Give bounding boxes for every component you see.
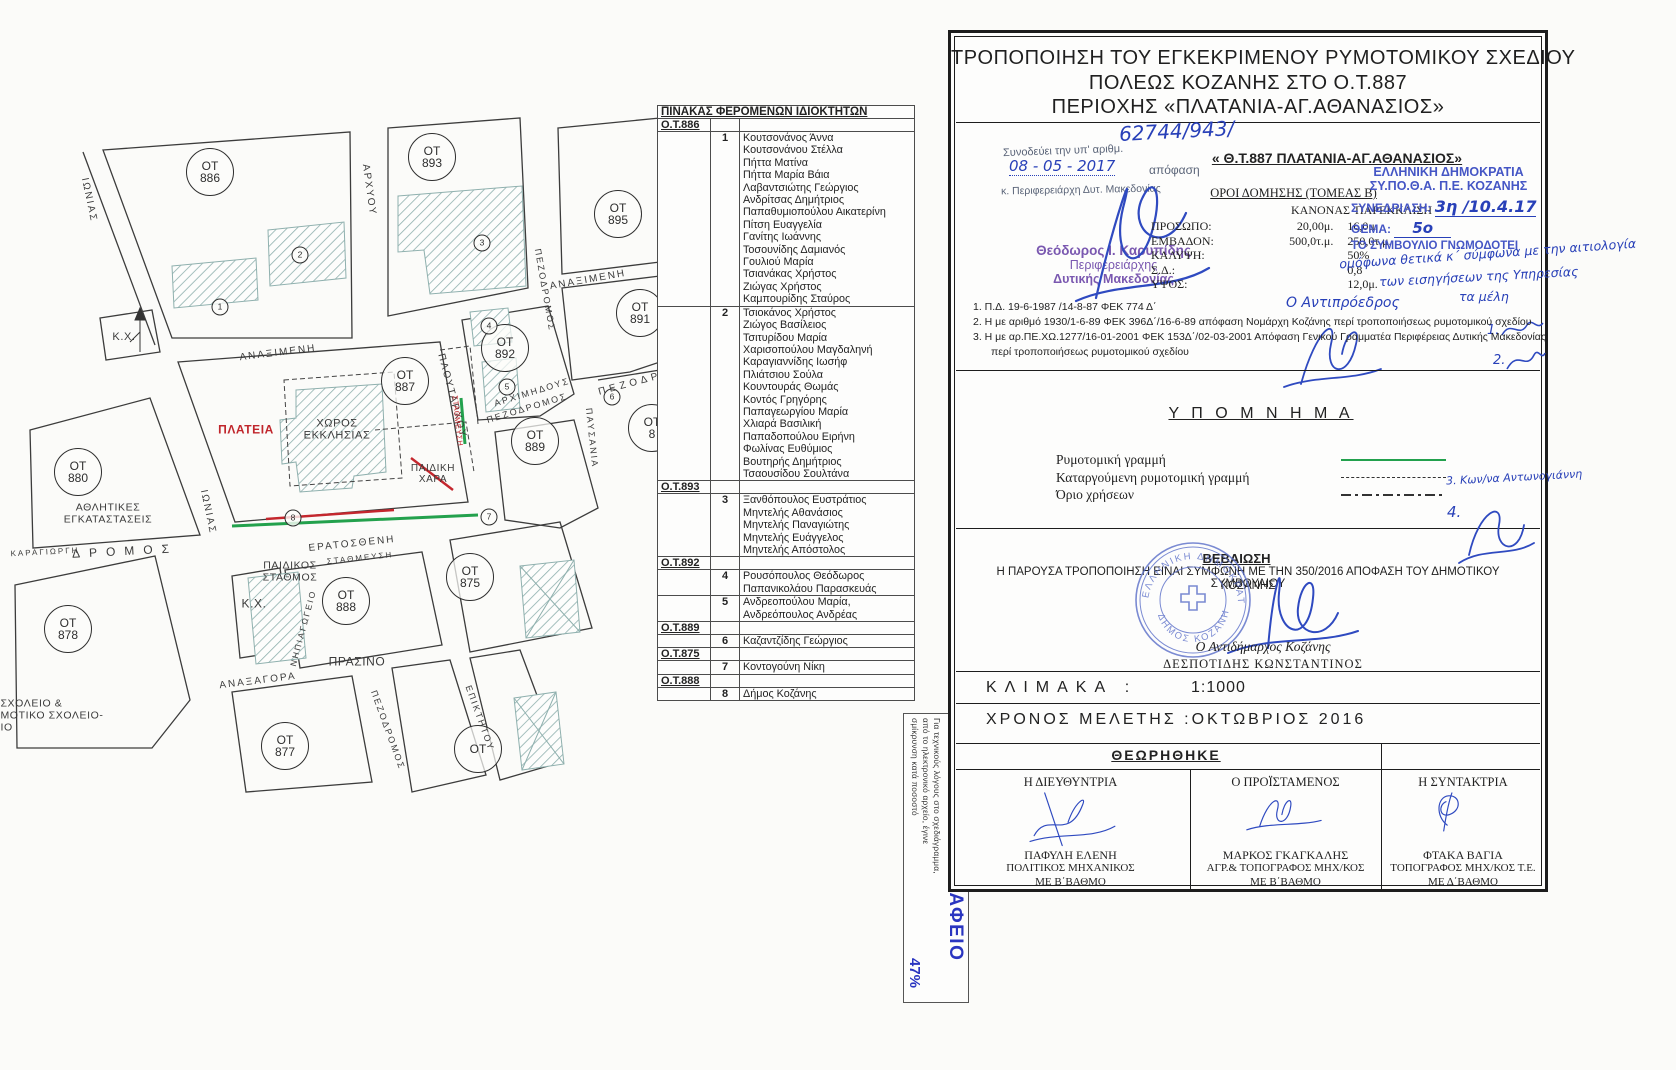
- topic-handwritten: 5ο: [1394, 219, 1451, 238]
- section-divider: [956, 671, 1540, 672]
- street-label: ΝΗΠΙΑΓΩΓΕΙΟ: [288, 589, 318, 668]
- owner-name: Ζιώγος Βασίλειος: [743, 319, 911, 331]
- area-label-line: ΑΘΛΗΤΙΚΕΣ: [64, 502, 152, 514]
- element: [740, 674, 915, 687]
- element: [658, 635, 711, 648]
- ot-number: 8: [649, 428, 656, 440]
- table-row: ΠΙΝΑΚΑΣ ΦΕΡΟΜΕΝΩΝ ΙΔΙΟΚΤΗΤΩΝ: [658, 106, 915, 119]
- element: [711, 119, 740, 132]
- ot-number: 887: [395, 381, 415, 393]
- element: [711, 557, 740, 570]
- owner-name: Ρουσόπουλος Θεόδωρος: [743, 570, 911, 582]
- area-label-line: ΣΤΑΘΜΟΣ: [263, 572, 318, 584]
- ot-circle: ΟΤ875: [446, 553, 494, 601]
- signer-title: ΤΟΠΟΓΡΑΦΟΣ ΜΗΧ/ΚΟΣ Τ.Ε.: [1390, 862, 1535, 876]
- city-plan-map: ΟΤ886ΟΤ893ΟΤ895ΟΤ891ΟΤ887ΟΤ892ΟΤ889ΟΤ880…: [0, 0, 660, 1070]
- ot-circle: ΟΤ888: [322, 577, 370, 625]
- owner-name: Τσαουσίδου Σουλτάνα: [743, 468, 911, 480]
- element: [658, 570, 711, 596]
- entry-number: 6: [711, 635, 740, 648]
- street-label: ΑΝΑΞΙΜΕΝΗ: [549, 268, 627, 292]
- area-label-line: ΕΓΚΑΤΑΣΤΑΣΕΙΣ: [64, 514, 152, 526]
- vice-mayor-role: Ο Αντιδήμαρχος Κοζάνης: [1173, 639, 1353, 655]
- owners-table: ΠΙΝΑΚΑΣ ΦΕΡΟΜΕΝΩΝ ΙΔΙΟΚΤΗΤΩΝΟ.Τ.8861Κουτ…: [657, 105, 915, 701]
- owner-name: Κοντογούνη Νίκη: [743, 661, 911, 673]
- element: [658, 494, 711, 557]
- element: [658, 687, 711, 700]
- owner-names: Ρουσόπουλος ΘεόδωροςΠαπανικολάου Παρασκε…: [740, 570, 915, 596]
- legend-symbol: [1341, 459, 1446, 461]
- terms-label: ΕΜΒΑΔΟΝ:: [1151, 234, 1245, 249]
- block-label: Ο.Τ.889: [658, 622, 711, 635]
- approved-signer-column: Η ΣΥΝΤΑΚΤΡΙΑΦΤΑΚΑ ΒΑΓΙΑΤΟΠΟΓΡΑΦΟΣ ΜΗΧ/ΚΟ…: [1381, 769, 1545, 889]
- owner-name: Πήττα Ματίνα: [743, 157, 911, 169]
- element: [658, 306, 711, 481]
- table-row: Ο.Τ.893: [658, 481, 915, 494]
- table-row: 3Ξανθόπουλος ΕυστράτιοςΜηντελής Αθανάσιο…: [658, 494, 915, 557]
- element: [740, 557, 915, 570]
- signer-name: ΜΑΡΚΟΣ ΓΚΑΓΚΑΛΗΣ: [1223, 849, 1348, 863]
- area-label-line: ΜΟΤΙΚΟ ΣΧΟΛΕΙΟ-: [0, 710, 103, 722]
- owner-name: Μηντελής Αθανάσιος: [743, 507, 911, 519]
- approved-signer-column: Ο ΠΡΟΪΣΤΑΜΕΝΟΣΜΑΡΚΟΣ ΓΚΑΓΚΑΛΗΣΑΓΡ.& ΤΟΠΟ…: [1190, 769, 1381, 889]
- owner-names: Τσιοκάνος ΧρήστοςΖιώγος ΒασίλειοςΤσιτυρί…: [740, 306, 915, 481]
- element: [658, 596, 711, 622]
- entry-number: 5: [711, 596, 740, 622]
- ot-circle: ΟΤ887: [381, 357, 429, 405]
- area-label-line: ΠΡΑΣΙΝΟ: [329, 655, 386, 668]
- building-number: 4: [481, 318, 498, 335]
- street-label: ΚΑΡΑΓΙΩΡΓΗ: [10, 546, 79, 559]
- legend-label: Καταργούμενη ρυμοτομική γραμμή: [1056, 470, 1249, 485]
- signer-title: ΠΟΛΙΤΙΚΟΣ ΜΗΧΑΝΙΚΟΣ: [1006, 862, 1134, 876]
- owner-name: Παπαγεωργίου Μαρία: [743, 406, 911, 418]
- ot-circle: ΟΤ893: [408, 133, 456, 181]
- ot-number: 888: [336, 601, 356, 613]
- ot-number: 889: [525, 441, 545, 453]
- entry-number: 7: [711, 661, 740, 674]
- area-label: ΣΤΑΘΜΕΥΣΗ: [450, 395, 464, 447]
- session-label: ΣΥΝΕΔΡΙΑΣΗ:: [1351, 201, 1431, 215]
- block-label: Ο.Τ.888: [658, 674, 711, 687]
- area-label-line: Κ.Χ.: [112, 331, 135, 343]
- signer-role: Η ΣΥΝΤΑΚΤΡΙΑ: [1418, 775, 1507, 790]
- area-label: Κ.Χ.: [112, 331, 135, 343]
- owner-name: Πίτση Ευαγγελία: [743, 219, 911, 231]
- area-label-line: ΠΑΙΔΙΚΗ: [411, 463, 455, 474]
- element: [740, 481, 915, 494]
- entry-number: 4: [711, 570, 740, 596]
- owner-name: Χλιαρά Βασιλική: [743, 418, 911, 430]
- block-label: Ο.Τ.886: [658, 119, 711, 132]
- topic-row: ΘΕΜΑ: 5ο: [1351, 219, 1546, 237]
- owner-names: Ξανθόπουλος ΕυστράτιοςΜηντελής Αθανάσιος…: [740, 494, 915, 557]
- street-label: ΙΩΝΙΑΣ: [198, 489, 218, 535]
- legend-label: Ρυμοτομική γραμμή: [1056, 452, 1166, 467]
- area-label-line: ΠΛΑΤΕΙΑ: [218, 423, 274, 436]
- street-label: ΙΩΝΙΑΣ: [79, 177, 99, 223]
- table-row: 7Κοντογούνη Νίκη: [658, 661, 915, 674]
- owner-name: Κοντός Γρηγόρης: [743, 394, 911, 406]
- owners-table-container: ΠΙΝΑΚΑΣ ΦΕΡΟΜΕΝΩΝ ΙΔΙΟΚΤΗΤΩΝΟ.Τ.8861Κουτ…: [657, 105, 915, 701]
- street-label: ΠΑΥΣΑΝΙΑ: [584, 407, 600, 468]
- map-labels: ΟΤ886ΟΤ893ΟΤ895ΟΤ891ΟΤ887ΟΤ892ΟΤ889ΟΤ880…: [0, 0, 660, 1070]
- owner-name: Καμπουρίδης Σταύρος: [743, 293, 911, 305]
- block-label: Ο.Τ.875: [658, 648, 711, 661]
- area-label: ΠΑΙΔΙΚΟΣΣΤΑΘΜΟΣ: [263, 560, 318, 584]
- building-number: 1: [212, 299, 229, 316]
- document-title-line: ΠΕΡΙΟΧΗΣ «ΠΛΑΤΑΝΙΑ-ΑΓ.ΑΘΑΝΑΣΙΟΣ»: [951, 96, 1545, 119]
- element: [740, 622, 915, 635]
- table-row: Ο.Τ.886: [658, 119, 915, 132]
- owner-name: Χαρισοπούλου Μαγδαληνή: [743, 344, 911, 356]
- print-note-line: Για τεχνικούς λόγους στο σχεδιάγραμμα,: [932, 718, 942, 998]
- ot-circle: ΟΤ886: [186, 148, 234, 196]
- street-label: ΔΡΟΜΟΣ: [72, 541, 179, 561]
- ot-number: 878: [58, 629, 78, 641]
- signer-role: Ο ΠΡΟΪΣΤΑΜΕΝΟΣ: [1231, 775, 1339, 790]
- ot-circle: ΟΤ877: [261, 722, 309, 770]
- ot-number: 893: [422, 157, 442, 169]
- area-label: Κ.Χ.: [241, 597, 266, 610]
- building-number: 3: [474, 235, 491, 252]
- area-label-line: ΣΧΟΛΕΙΟ &: [0, 698, 103, 710]
- table-row: Ο.Τ.892: [658, 557, 915, 570]
- street-label: ΠΕΖΟΔΡ: [597, 370, 660, 397]
- element: [711, 674, 740, 687]
- area-label: ΧΩΡΟΣΕΚΚΛΗΣΙΑΣ: [304, 418, 371, 443]
- section-divider: [956, 370, 1540, 371]
- area-label-line: ΣΤΑΘΜΕΥΣΗ: [450, 395, 464, 447]
- note-line: περί τροποποιήσεως ρυμοτομικού σχεδίου: [991, 346, 1189, 358]
- signer-title: ΜΕ Β΄ΒΑΘΜΟ: [1250, 876, 1321, 890]
- signature-scribble: [1211, 790, 1361, 849]
- owners-table-title: ΠΙΝΑΚΑΣ ΦΕΡΟΜΕΝΩΝ ΙΔΙΟΚΤΗΤΩΝ: [658, 106, 915, 119]
- terms-kanonas-value: [1245, 248, 1334, 263]
- owner-name: Μηντελής Ευάγγελος: [743, 532, 911, 544]
- street-label: ΑΝΑΞΙΜΕΝΗ: [239, 343, 317, 363]
- owner-name: Ανδρεοπούλου Μαρία,: [743, 596, 911, 608]
- owner-name: Φωλίνας Ευθύμιος: [743, 443, 911, 455]
- area-label: ΠΛΑΤΕΙΑ: [218, 423, 274, 436]
- area-label-line: ΠΑΙΔΙΚΟΣ: [263, 560, 318, 572]
- owner-name: Ανδρεόπουλος Ανδρέας: [743, 609, 911, 621]
- terms-label: ΚΑΛΥΨΗ:: [1151, 248, 1245, 263]
- table-row: Ο.Τ.889: [658, 622, 915, 635]
- table-row: 2Τσιοκάνος ΧρήστοςΖιώγος ΒασίλειοςΤσιτυρ…: [658, 306, 915, 481]
- area-label-line: ΙΟ: [0, 722, 103, 734]
- owner-name: Πήττα Μαρία Βάια: [743, 169, 911, 181]
- terms-label: Σ.Δ.:: [1151, 263, 1245, 278]
- ot-circle: ΟΤ895: [594, 190, 642, 238]
- signature-scribble: [1388, 790, 1538, 849]
- signer-title: ΜΕ Δ΄ΒΑΘΜΟ: [1428, 876, 1498, 890]
- street-label: ΑΝΑΞΑΓΟΡΑ: [219, 671, 297, 691]
- street-label: ΑΡΧΥΟΥ: [360, 163, 378, 216]
- element: [658, 132, 711, 307]
- vice-mayor-name: ΔΕΣΠΟΤΙΔΗΣ ΚΩΝΣΤΑΝΤΙΝΟΣ: [1133, 657, 1393, 672]
- topic-label: ΘΕΜΑ:: [1351, 222, 1391, 236]
- owner-name: Λαβαντσιώτης Γεώργιος: [743, 182, 911, 194]
- owner-name: Βουτηρής Δημήτριος: [743, 456, 911, 468]
- session-handwritten: 3η /10.4.17: [1435, 197, 1537, 217]
- table-row: Ο.Τ.875: [658, 648, 915, 661]
- title-block: ΤΡΟΠΟΠΟΙΗΣΗ ΤΟΥ ΕΓΚΕΚΡΙΜΕΝΟΥ ΡΥΜΟΤΟΜΙΚΟΥ…: [948, 30, 1548, 892]
- ot-number: 877: [275, 746, 295, 758]
- signature-scribble: [1449, 495, 1537, 569]
- table-row: 5Ανδρεοπούλου Μαρία,Ανδρεόπουλος Ανδρέας: [658, 596, 915, 622]
- owner-names: Ανδρεοπούλου Μαρία,Ανδρεόπουλος Ανδρέας: [740, 596, 915, 622]
- area-label-line: ΧΩΡΟΣ: [304, 418, 371, 430]
- approved-signer-column: Η ΔΙΕΥΘΥΝΤΡΙΑΠΑΦΥΛΗ ΕΛΕΝΗΠΟΛΙΤΙΚΟΣ ΜΗΧΑΝ…: [951, 769, 1190, 889]
- owner-name: Κουτσονάνου Στέλλα: [743, 144, 911, 156]
- street-label: ΠΕΖΟΔΡΟΜΟΣ: [369, 689, 407, 771]
- legend-items: Ρυμοτομική γραμμήΚαταργούμενη ρυμοτομική…: [1056, 451, 1456, 504]
- building-number: 2: [292, 247, 309, 264]
- section-divider: [956, 122, 1540, 123]
- print-note-line: από το ηλεκτρονικό αρχείο, έγινε: [921, 718, 931, 998]
- area-label: ΠΑΙΔΙΚΗΧΑΡΑ: [411, 463, 455, 485]
- legend-item: Ρυμοτομική γραμμή: [1056, 451, 1456, 469]
- document-title-line: ΠΟΛΕΩΣ ΚΟΖΑΝΗΣ ΣΤΟ Ο.Τ.887: [951, 72, 1545, 95]
- element: [658, 661, 711, 674]
- ot-number: 880: [68, 472, 88, 484]
- owner-names: Δήμος Κοζάνης: [740, 687, 915, 700]
- document-title-line: ΤΡΟΠΟΠΟΙΗΣΗ ΤΟΥ ΕΓΚΕΚΡΙΜΕΝΟΥ ΡΥΜΟΤΟΜΙΚΟΥ…: [951, 47, 1545, 70]
- table-row: 8Δήμος Κοζάνης: [658, 687, 915, 700]
- note-line: 3. Η με αρ.ΠΕ.ΧΩ.1277/16-01-2001 ΦΕΚ 153…: [973, 331, 1546, 343]
- building-number: 7: [481, 509, 498, 526]
- owner-name: Πλιάτσιου Σούλα: [743, 369, 911, 381]
- area-label-line: Κ.Χ.: [241, 597, 266, 610]
- element: [740, 648, 915, 661]
- ot-circle: ΟΤ878: [44, 605, 92, 653]
- stamp-line: ΕΛΛΗΝΙΚΗ ΔΗΜΟΚΡΑΤΙΑ: [1351, 165, 1546, 179]
- table-row: Ο.Τ.888: [658, 674, 915, 687]
- terms-kanonas-value: 500,0τ.μ.: [1245, 234, 1334, 249]
- section-divider: [956, 703, 1540, 704]
- owner-name: Μηντελής Απόστολος: [743, 544, 911, 556]
- owner-names: Κουτσονάνος ΆνναΚουτσονάνου ΣτέλλαΠήττα …: [740, 132, 915, 307]
- element: [740, 119, 915, 132]
- owner-name: Τσιανάκας Χρήστος: [743, 268, 911, 280]
- entry-number: 8: [711, 687, 740, 700]
- shrink-percent: 47%: [906, 958, 923, 988]
- owner-name: Καραγιαννίδης Ιωσήφ: [743, 356, 911, 368]
- area-label: ΠΡΑΣΙΝΟ: [329, 655, 386, 668]
- legend-title: Υ Π Ο Μ Ν Η Μ Α: [1131, 405, 1391, 423]
- scale-value: 1:1000: [1191, 679, 1246, 697]
- signer-name: ΠΑΦΥΛΗ ΕΛΕΝΗ: [1024, 849, 1116, 863]
- stamp-line: ΣΥ.ΠΟ.Θ.Α. Π.Ε. ΚΟΖΑΝΗΣ: [1351, 179, 1546, 193]
- ot-number: 886: [200, 172, 220, 184]
- ot-number: 895: [608, 214, 628, 226]
- legend-label: Όριο χρήσεων: [1056, 487, 1134, 502]
- element: [711, 622, 740, 635]
- note-line: 1. Π.Δ. 19-6-1987 /14-8-87 ΦΕΚ 774 Δ΄: [973, 301, 1157, 313]
- ot-circle: ΟΤ880: [54, 448, 102, 496]
- area-label: ΑΘΛΗΤΙΚΕΣΕΓΚΑΤΑΣΤΑΣΕΙΣ: [64, 502, 152, 526]
- owner-names: Καζαντζίδης Γεώργιος: [740, 635, 915, 648]
- scanned-urban-plan-document: { "colors":{"accent_green":"#23a14d","ac…: [0, 0, 1676, 1070]
- owner-name: Δήμος Κοζάνης: [743, 688, 911, 700]
- ot-number: 892: [495, 348, 515, 360]
- terms-label: ΠΡΟΣΩΠΟ:: [1151, 219, 1245, 234]
- greek-cross-icon: [1181, 586, 1205, 610]
- subtitle: « Θ.Τ.887 ΠΛΑΤΑΝΙΑ-ΑΓ.ΑΘΑΝΑΣΙΟΣ»: [1193, 150, 1481, 166]
- print-note-line: σμίκρυνση κατά ποσοστό: [910, 718, 920, 998]
- owner-names: Κοντογούνη Νίκη: [740, 661, 915, 674]
- element: [711, 481, 740, 494]
- session-row: ΣΥΝΕΔΡΙΑΣΗ: 3η /10.4.17: [1351, 197, 1546, 216]
- legend-item: Όριο χρήσεων: [1056, 486, 1456, 504]
- owner-name: Παπαδοπούλου Ειρήνη: [743, 431, 911, 443]
- entry-number: 1: [711, 132, 740, 307]
- terms-kanonas-value: [1245, 277, 1334, 292]
- note-line: 2. Η με αριθμό 1930/1-6-89 ΦΕΚ 396Δ΄/16-…: [973, 316, 1532, 328]
- owner-name: Καζαντζίδης Γεώργιος: [743, 635, 911, 647]
- committee-opinion-handwritten: τα μέλη: [1459, 289, 1509, 304]
- owner-name: Παπαθυμιοπούλου Αικατερίνη: [743, 206, 911, 218]
- terms-label: ΥΨΟΣ:: [1151, 277, 1245, 292]
- approved-title: ΘΕΩΡΗΘΗΚΕ: [951, 747, 1381, 763]
- entry-number: 2: [711, 306, 740, 481]
- study-time: ΧΡΟΝΟΣ ΜΕΛΕΤΗΣ :ΟΚΤΩΒΡΙΟΣ 2016: [986, 711, 1366, 729]
- sypotha-stamp: ΕΛΛΗΝΙΚΗ ΔΗΜΟΚΡΑΤΙΑ ΣΥ.ΠΟ.Θ.Α. Π.Ε. ΚΟΖΑ…: [1351, 165, 1546, 252]
- terms-kanonas-value: [1245, 263, 1334, 278]
- street-label: ΣΤΑΘΜΕΥΣΗ: [326, 550, 393, 566]
- owner-name: Τοσουνίδης Δαμιανός: [743, 244, 911, 256]
- scale-label: ΚΛΙΜΑΚΑ :: [986, 679, 1137, 697]
- approved-signer-columns: Η ΔΙΕΥΘΥΝΤΡΙΑΠΑΦΥΛΗ ΕΛΕΝΗΠΟΛΙΤΙΚΟΣ ΜΗΧΑΝ…: [951, 769, 1545, 889]
- table-row: 6Καζαντζίδης Γεώργιος: [658, 635, 915, 648]
- owner-name: Ξανθόπουλος Ευστράτιος: [743, 494, 911, 506]
- signer-name: ΦΤΑΚΑ ΒΑΓΙΑ: [1423, 849, 1503, 863]
- element: [711, 648, 740, 661]
- section-divider: [956, 743, 1540, 744]
- block-label: Ο.Τ.892: [658, 557, 711, 570]
- owner-name: Γανίτης Ιωάννης: [743, 231, 911, 243]
- legend-symbol: [1341, 494, 1446, 496]
- entry-number: 3: [711, 494, 740, 557]
- owner-name: Παπανικολάου Παρασκευάς: [743, 583, 911, 595]
- signer-role: Η ΔΙΕΥΘΥΝΤΡΙΑ: [1024, 775, 1117, 790]
- building-number: 8: [285, 510, 302, 527]
- owner-name: Κουντουράς Θωμάς: [743, 381, 911, 393]
- block-label: Ο.Τ.893: [658, 481, 711, 494]
- signature-scribble: [996, 790, 1146, 849]
- area-label-line: ΧΑΡΑ: [411, 474, 455, 485]
- terms-col-kanonas: ΚΑΝΟΝΑΣ: [1291, 203, 1350, 218]
- legend-item: Καταργούμενη ρυμοτομική γραμμή: [1056, 469, 1456, 487]
- owner-name: Μηντελής Παναγιώτης: [743, 519, 911, 531]
- ot-circle: ΟΤ891: [616, 289, 660, 337]
- area-label-line: ΕΚΚΛΗΣΙΑΣ: [304, 430, 371, 442]
- terms-kanonas-value: 20,00μ.: [1245, 219, 1334, 234]
- owner-name: Ζιώγας Χρήστος: [743, 281, 911, 293]
- ot-number: 875: [460, 577, 480, 589]
- area-label: ΣΧΟΛΕΙΟ &ΜΟΤΙΚΟ ΣΧΟΛΕΙΟ-ΙΟ: [0, 698, 103, 733]
- member-signature-3: 3. Κων/να Αντωνογιάννη: [1446, 467, 1583, 487]
- ot-circle: ΟΤ889: [511, 417, 559, 465]
- owner-name: Ανδρίτσας Δημήτριος: [743, 194, 911, 206]
- owner-name: Τσιοκάνος Χρήστος: [743, 307, 911, 319]
- title-block-inner: ΤΡΟΠΟΠΟΙΗΣΗ ΤΟΥ ΕΓΚΕΚΡΙΜΕΝΟΥ ΡΥΜΟΤΟΜΙΚΟΥ…: [951, 33, 1545, 889]
- ot-circle: ΟΤ8: [628, 404, 660, 452]
- table-row: 4Ρουσόπουλος ΘεόδωροςΠαπανικολάου Παρασκ…: [658, 570, 915, 596]
- owner-name: Γουλιού Μαρία: [743, 256, 911, 268]
- table-row: 1Κουτσονάνος ΆνναΚουτσονάνου ΣτέλλαΠήττα…: [658, 132, 915, 307]
- handwritten-protocol-number: 62744/943/: [1118, 116, 1234, 146]
- signer-title: ΑΓΡ.& ΤΟΠΟΓΡΑΦΟΣ ΜΗΧ/ΚΟΣ: [1207, 862, 1365, 876]
- ot-number: 891: [630, 313, 650, 325]
- owner-name: Κουτσονάνος Άννα: [743, 132, 911, 144]
- signer-title: ΜΕ Β΄ΒΑΘΜΟ: [1035, 876, 1106, 890]
- owner-name: Τσιτυρίδου Μαρία: [743, 332, 911, 344]
- legend-symbol: [1341, 477, 1446, 478]
